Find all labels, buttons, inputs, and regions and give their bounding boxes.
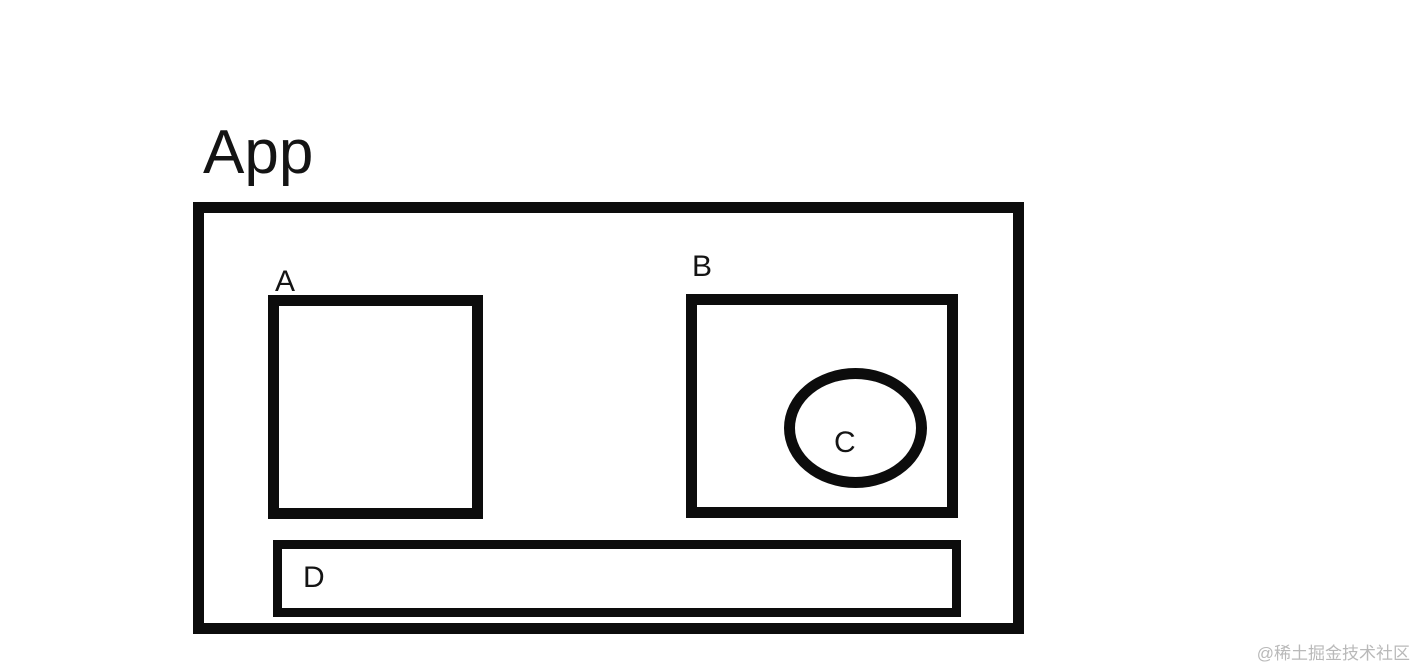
- ellipse-c-label: C: [834, 428, 856, 458]
- diagram-canvas: App A B C D @稀土掘金技术社区: [0, 0, 1416, 672]
- box-a-label: A: [275, 267, 295, 297]
- box-b-label: B: [692, 252, 712, 282]
- box-a: [268, 295, 483, 519]
- bar-d: [273, 540, 961, 617]
- diagram-title: App: [203, 122, 313, 184]
- bar-d-label: D: [303, 563, 325, 593]
- watermark: @稀土掘金技术社区: [1257, 644, 1410, 664]
